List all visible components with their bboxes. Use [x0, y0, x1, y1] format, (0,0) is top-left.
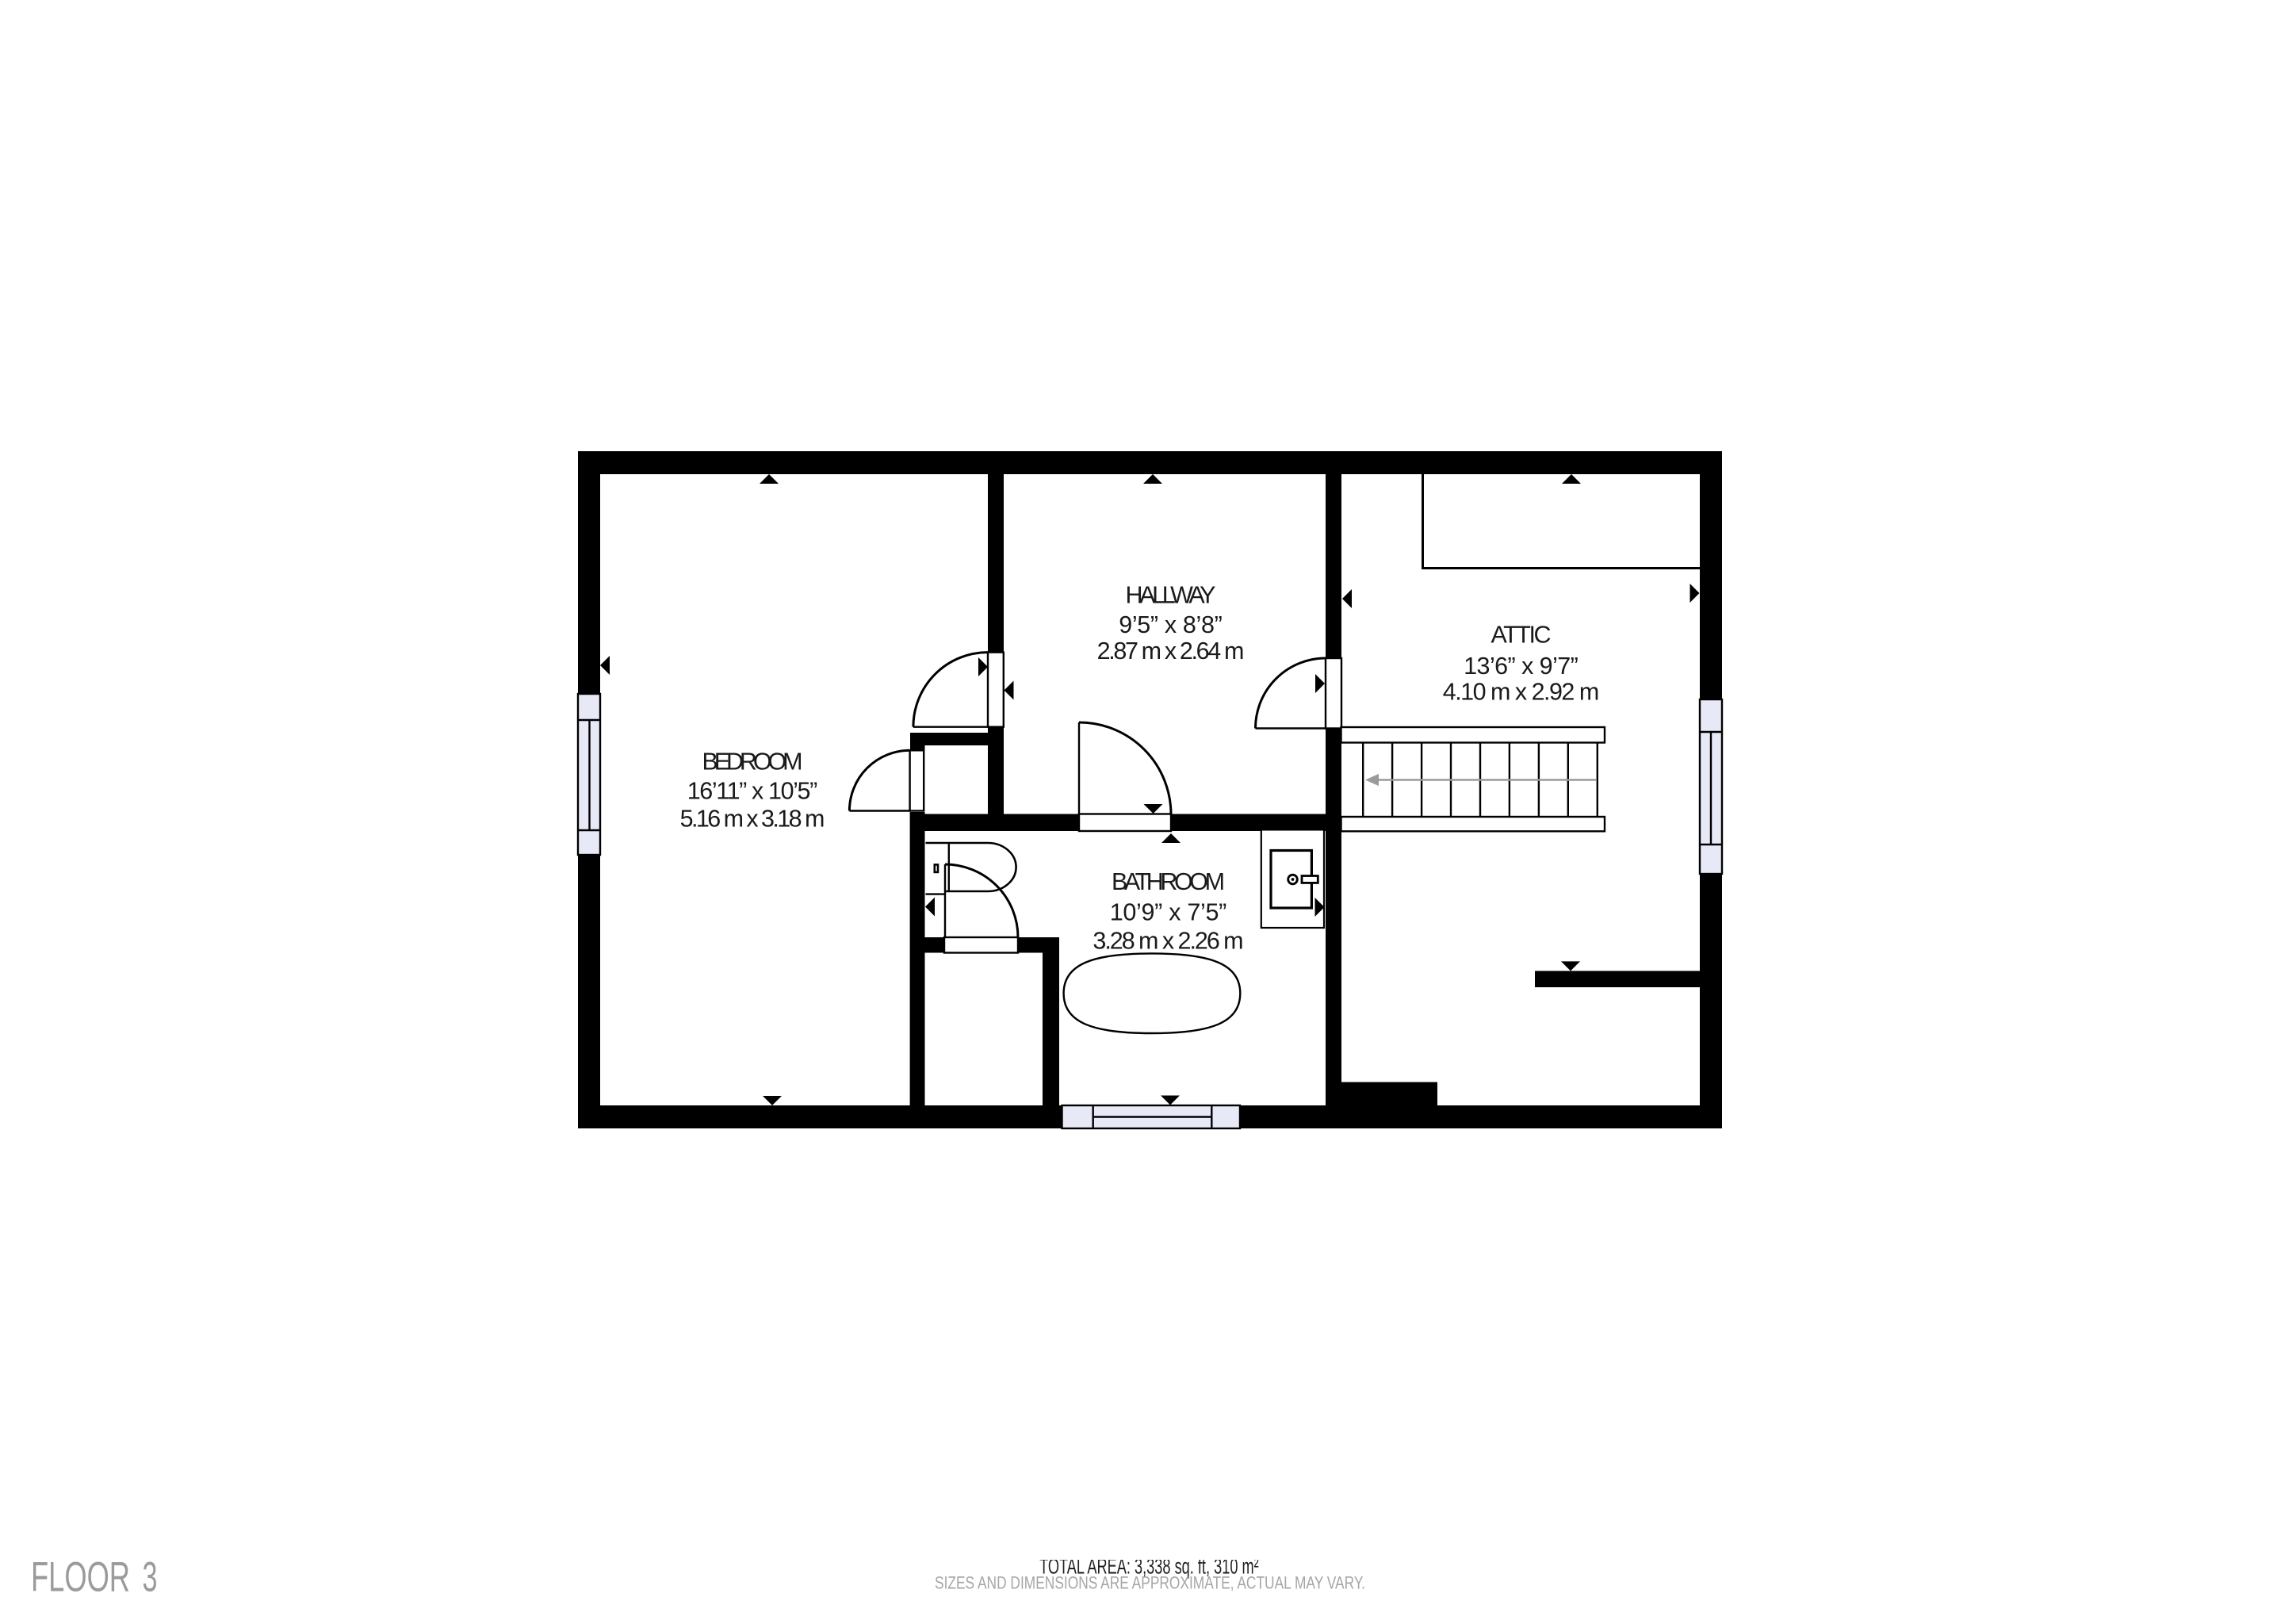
svg-text:10’9” x 7’5”: 10’9” x 7’5”	[1110, 898, 1227, 925]
svg-text:BEDROOM: BEDROOM	[702, 749, 803, 776]
svg-text:3: 3	[143, 1554, 158, 1601]
svg-text:5.16 m x 3.18 m: 5.16 m x 3.18 m	[680, 805, 825, 832]
svg-text:16’11” x 10’5”: 16’11” x 10’5”	[687, 778, 818, 805]
svg-text:HALLWAY: HALLWAY	[1126, 582, 1216, 609]
svg-text:3.28 m x 2.26 m: 3.28 m x 2.26 m	[1093, 927, 1243, 954]
svg-text:ATTIC: ATTIC	[1491, 622, 1552, 649]
svg-text:FLOOR: FLOOR	[31, 1554, 130, 1601]
svg-text:SIZES AND DIMENSIONS ARE APPRO: SIZES AND DIMENSIONS ARE APPROXIMATE, AC…	[935, 1573, 1365, 1593]
svg-text:BATHROOM: BATHROOM	[1112, 868, 1225, 895]
svg-text:2.87 m x 2.64 m: 2.87 m x 2.64 m	[1097, 638, 1245, 665]
svg-text:4.10 m x 2.92 m: 4.10 m x 2.92 m	[1443, 678, 1600, 705]
svg-text:13’6” x 9’7”: 13’6” x 9’7”	[1464, 653, 1578, 680]
svg-text:9’5” x 8’8”: 9’5” x 8’8”	[1119, 611, 1223, 638]
